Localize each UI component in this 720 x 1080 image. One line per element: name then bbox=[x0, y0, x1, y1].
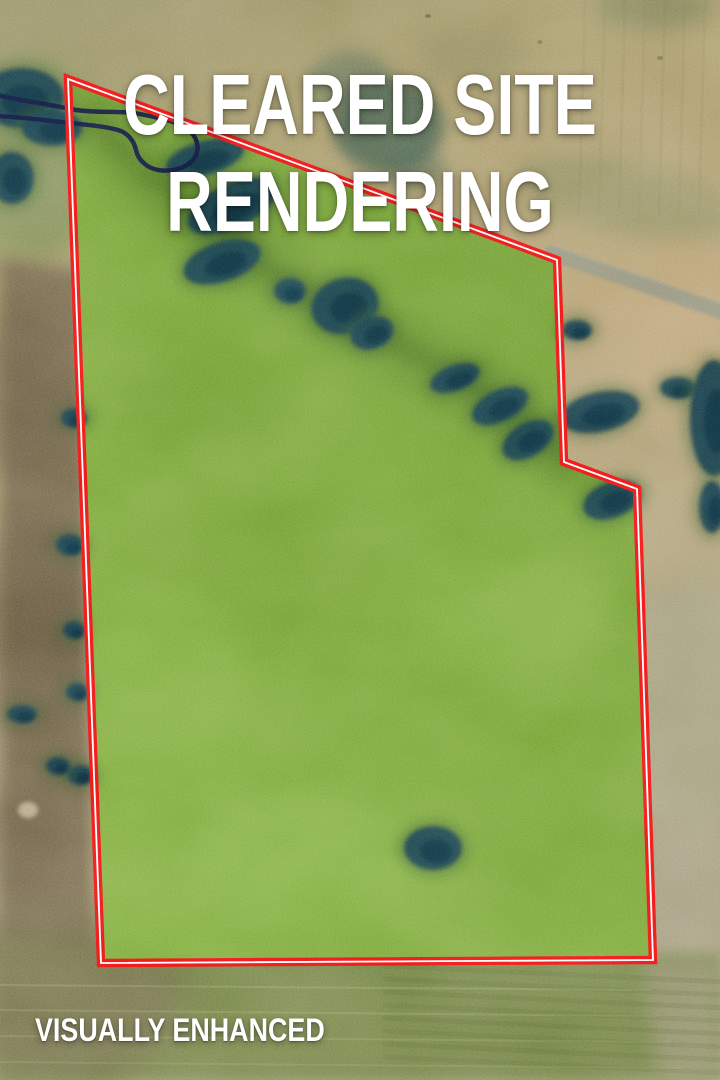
terrain-mottle-overlay bbox=[0, 0, 720, 1080]
aerial-scene bbox=[0, 0, 720, 1080]
aerial-site-rendering: CLEARED SITE RENDERING VISUALLY ENHANCED bbox=[0, 0, 720, 1080]
watermark-label: VISUALLY ENHANCED bbox=[35, 1012, 325, 1048]
